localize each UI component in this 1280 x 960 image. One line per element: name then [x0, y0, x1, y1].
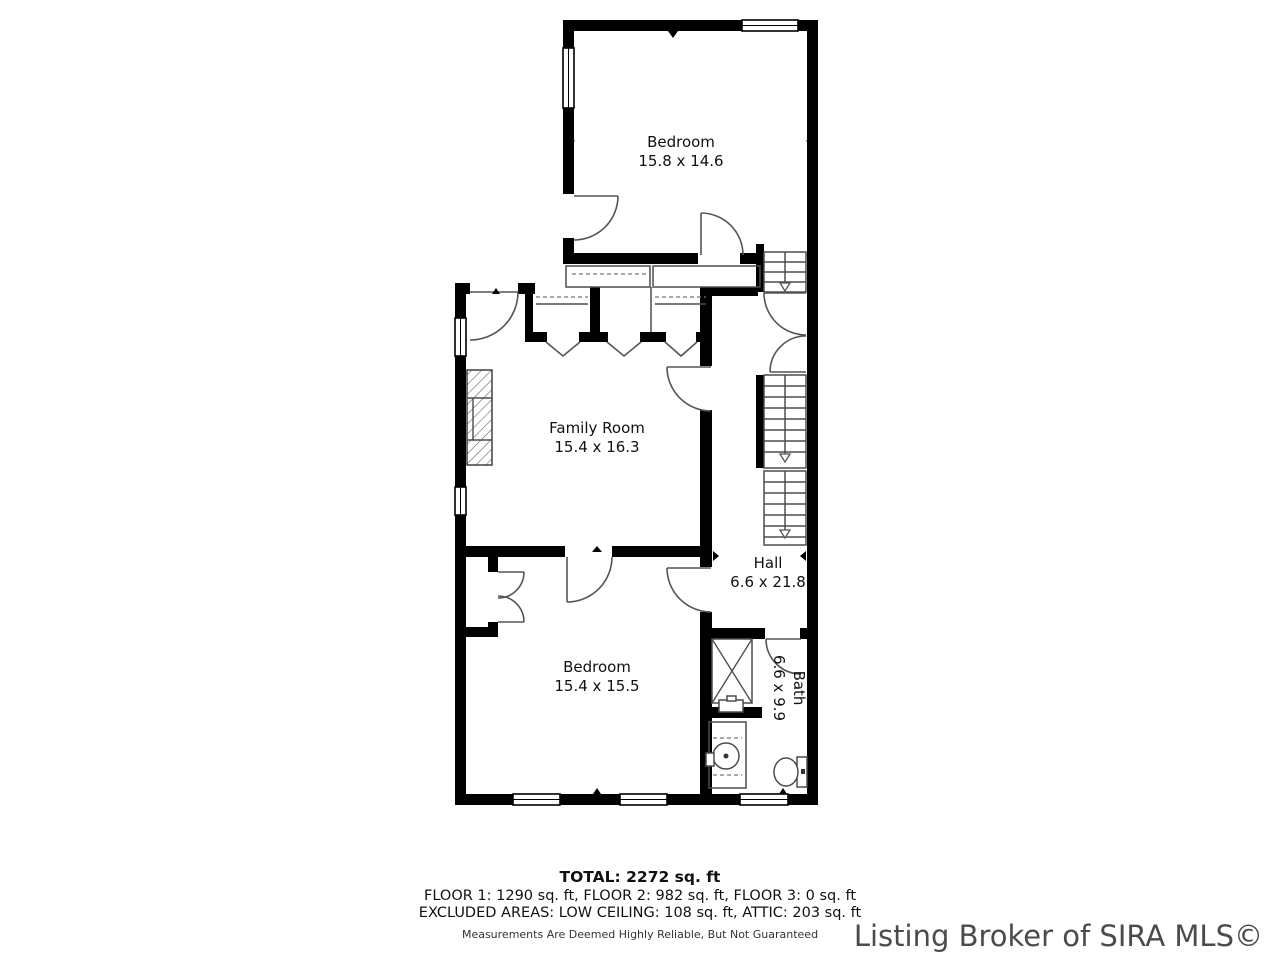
floor-plan-page: Bedroom 15.8 x 14.6 Family Room 15.4 x 1… — [0, 0, 1280, 960]
room-dims-bath: 6.6 x 9.9 — [770, 655, 788, 721]
shower-icon — [712, 639, 752, 703]
summary-total: TOTAL: 2272 sq. ft — [560, 868, 721, 886]
room-dims-bedroom-upper: 15.8 x 14.6 — [638, 152, 723, 170]
room-dims-family-room: 15.4 x 16.3 — [554, 438, 639, 456]
window — [740, 794, 788, 805]
room-label-family-room: Family Room — [549, 419, 645, 437]
room-label-bedroom-upper: Bedroom — [647, 133, 715, 151]
window — [563, 48, 574, 108]
window — [513, 794, 560, 805]
closet-double-door — [498, 572, 524, 622]
closet-chevron — [546, 342, 580, 356]
door-arc — [567, 557, 612, 602]
stair-down-arrow-icon — [780, 283, 790, 291]
door-arc — [770, 336, 806, 372]
window — [455, 318, 466, 356]
room-label-hall: Hall — [754, 554, 783, 572]
door-arc — [667, 367, 711, 411]
room-dims-hall: 6.6 x 21.8 — [730, 573, 806, 591]
sink-icon — [719, 696, 743, 712]
staircase-main — [756, 375, 806, 545]
door-arc — [701, 213, 743, 255]
door-arc — [470, 292, 518, 340]
door-arc — [574, 196, 618, 240]
listing-broker-watermark: Listing Broker of SIRA MLS© — [854, 919, 1263, 953]
door-arc — [667, 568, 711, 612]
window — [455, 487, 466, 515]
door-arc — [764, 293, 806, 335]
window — [620, 794, 667, 805]
room-dims-bedroom-lower: 15.4 x 15.5 — [554, 677, 639, 695]
closet-chevron — [607, 342, 641, 356]
toilet-icon — [774, 757, 807, 787]
summary-floors: FLOOR 1: 1290 sq. ft, FLOOR 2: 982 sq. f… — [424, 888, 856, 904]
staircase-upper-flight — [764, 252, 806, 292]
closet-chevron — [665, 342, 697, 356]
closet-bays — [536, 287, 706, 356]
room-label-bath: Bath — [790, 671, 808, 706]
room-label-bedroom-lower: Bedroom — [563, 658, 631, 676]
floor-plan-drawing: Bedroom 15.8 x 14.6 Family Room 15.4 x 1… — [0, 0, 1280, 960]
summary-excluded-areas: EXCLUDED AREAS: LOW CEILING: 108 sq. ft,… — [419, 905, 862, 921]
measurement-disclaimer: Measurements Are Deemed Highly Reliable,… — [462, 928, 818, 941]
landing-closets — [566, 266, 760, 287]
window — [742, 20, 798, 31]
stair-down-arrow-icon — [780, 454, 790, 462]
fireplace-icon — [467, 370, 492, 465]
